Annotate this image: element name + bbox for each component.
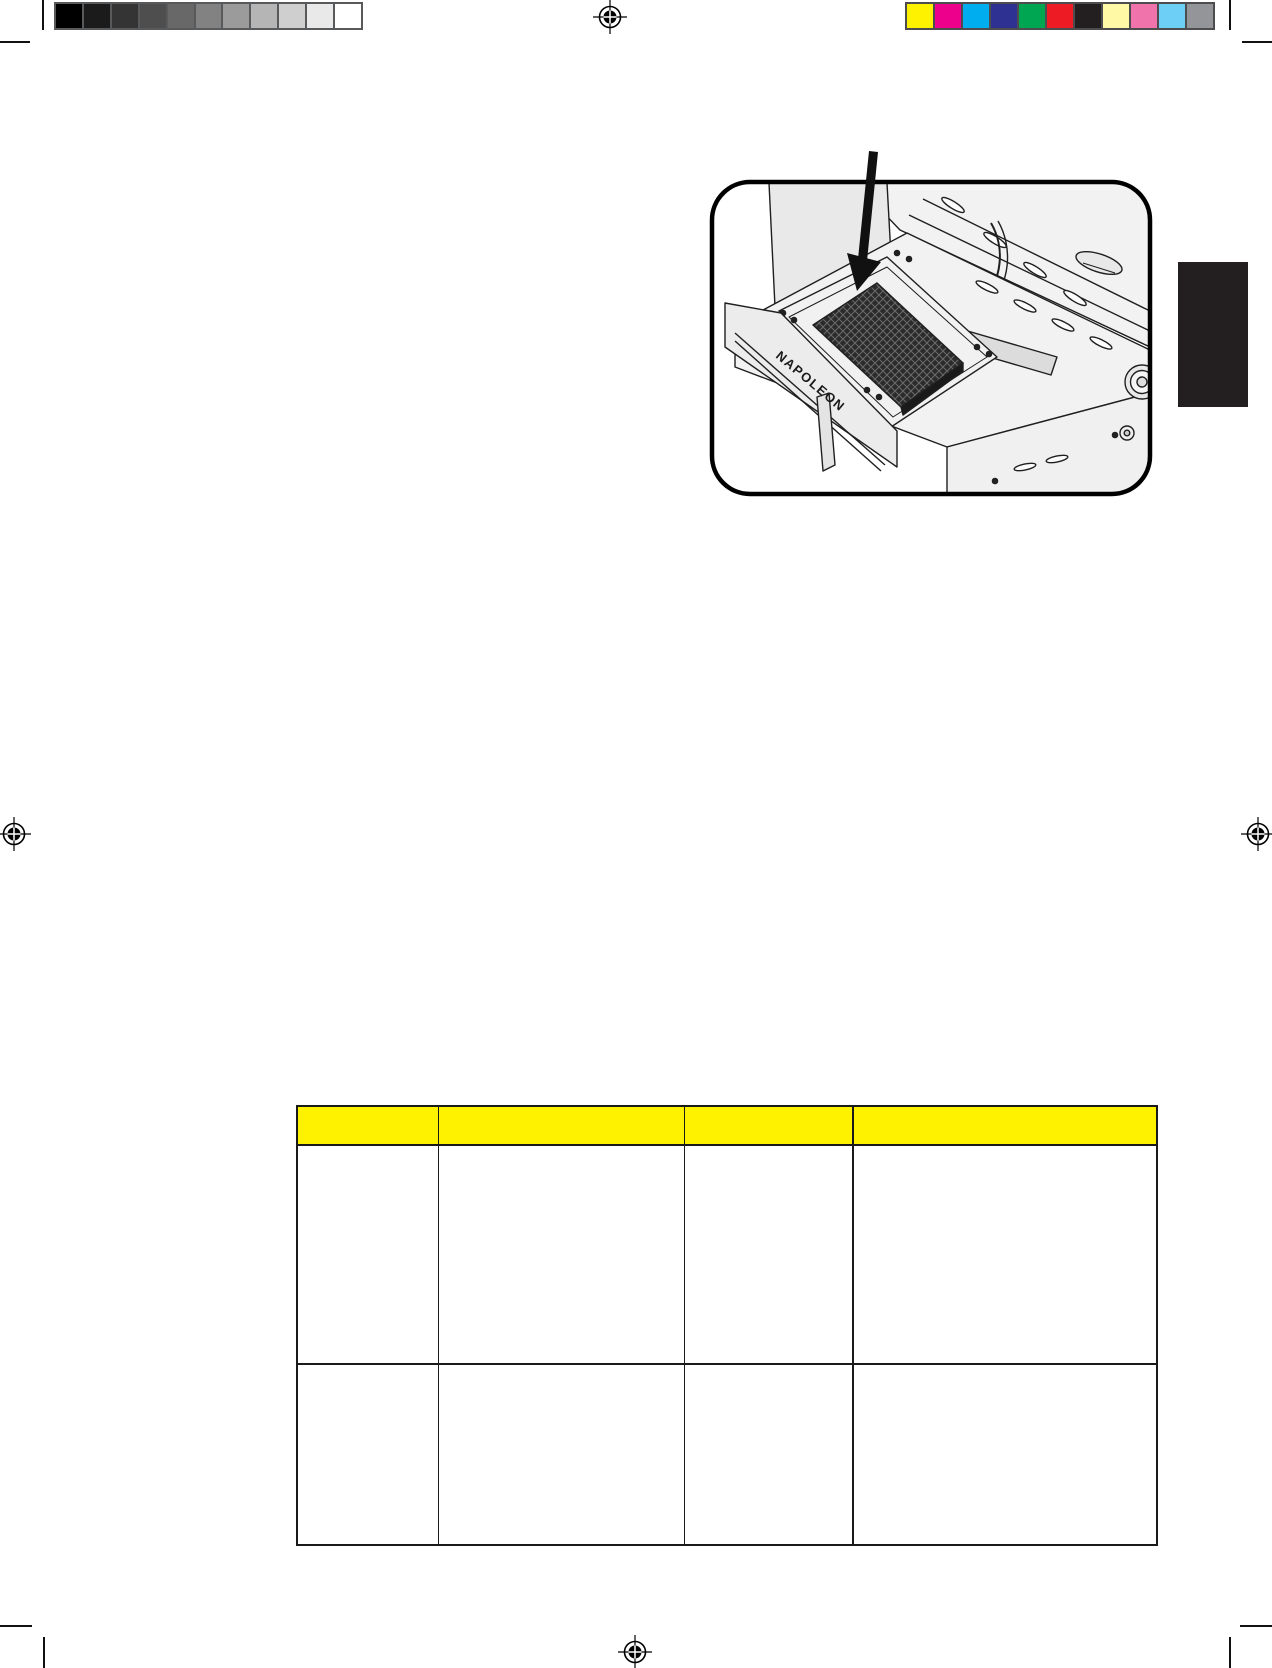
registration-mark-icon (0, 817, 31, 851)
table-cell (685, 1365, 854, 1544)
grayscale-swatch (196, 4, 222, 28)
grayscale-calibration-bar (54, 2, 363, 30)
grayscale-swatch (307, 4, 333, 28)
table-cell (439, 1146, 685, 1365)
table-cell (298, 1365, 439, 1544)
table-header-cell (854, 1107, 1156, 1146)
crop-mark (1229, 1637, 1231, 1668)
table-header-cell (685, 1107, 854, 1146)
grayscale-swatch (84, 4, 110, 28)
color-swatch (991, 4, 1017, 28)
grayscale-swatch (335, 4, 361, 28)
table-cell (439, 1365, 685, 1544)
manual-page: NAPOLEON (0, 0, 1272, 1668)
color-swatch (1131, 4, 1157, 28)
crop-mark (43, 1637, 45, 1668)
color-swatch (1019, 4, 1045, 28)
registration-mark-icon (1241, 817, 1272, 851)
color-swatch (1187, 4, 1213, 28)
color-swatch (1047, 4, 1073, 28)
crop-mark (0, 1625, 32, 1627)
grayscale-swatch (168, 4, 194, 28)
crop-mark (42, 0, 44, 30)
table-header-cell (439, 1107, 685, 1146)
grayscale-swatch (112, 4, 138, 28)
crop-mark (1242, 41, 1272, 43)
section-tab (1178, 262, 1248, 407)
spec-table (296, 1105, 1158, 1546)
table-header-cell (298, 1107, 439, 1146)
color-calibration-bar (905, 2, 1215, 30)
table-cell (854, 1146, 1156, 1365)
crop-mark (0, 41, 30, 43)
crop-mark (1240, 1625, 1272, 1627)
color-swatch (963, 4, 989, 28)
color-swatch (1075, 4, 1101, 28)
grayscale-swatch (140, 4, 166, 28)
color-swatch (907, 4, 933, 28)
registration-mark-icon (618, 1635, 652, 1668)
grayscale-swatch (56, 4, 82, 28)
grayscale-swatch (223, 4, 249, 28)
grayscale-swatch (251, 4, 277, 28)
color-swatch (935, 4, 961, 28)
color-swatch (1103, 4, 1129, 28)
registration-mark-icon (593, 0, 627, 34)
color-swatch (1159, 4, 1185, 28)
table-cell (298, 1146, 439, 1365)
table-cell (685, 1146, 854, 1365)
crop-mark (1229, 0, 1231, 30)
table-cell (854, 1365, 1156, 1544)
grayscale-swatch (279, 4, 305, 28)
grill-illustration: NAPOLEON (695, 135, 1165, 505)
